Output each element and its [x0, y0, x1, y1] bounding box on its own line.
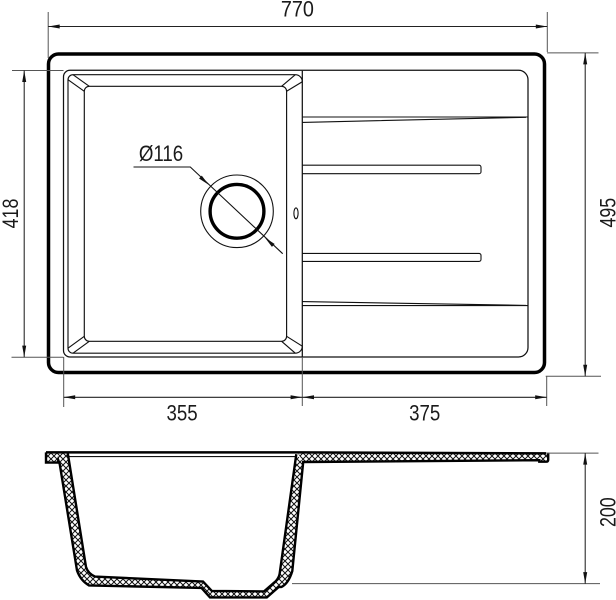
svg-text:200: 200	[597, 497, 616, 527]
svg-text:375: 375	[409, 402, 440, 426]
svg-text:Ø116: Ø116	[139, 143, 183, 167]
svg-text:495: 495	[597, 198, 616, 228]
svg-text:770: 770	[281, 0, 314, 22]
svg-text:355: 355	[167, 402, 198, 426]
svg-text:418: 418	[0, 199, 23, 229]
